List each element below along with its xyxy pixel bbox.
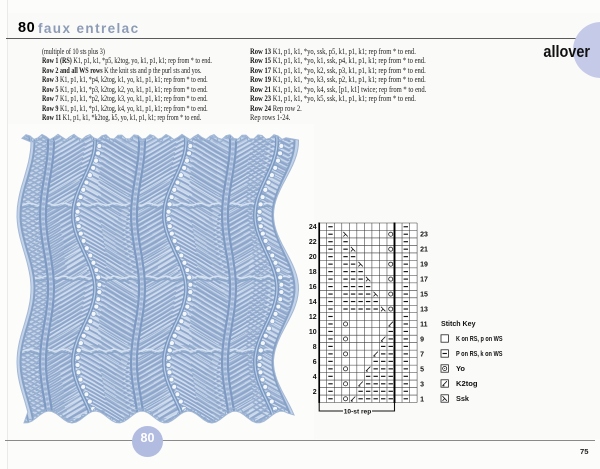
svg-text:12: 12 — [309, 314, 317, 321]
svg-text:22: 22 — [309, 239, 317, 246]
svg-text:3: 3 — [420, 381, 424, 388]
svg-text:Yo: Yo — [456, 366, 465, 373]
svg-text:16: 16 — [309, 284, 317, 291]
svg-text:10-st rep: 10-st rep — [344, 409, 372, 416]
svg-text:15: 15 — [420, 292, 428, 299]
svg-text:14: 14 — [309, 299, 317, 306]
svg-text:17: 17 — [420, 277, 428, 284]
svg-text:6: 6 — [313, 359, 317, 366]
svg-text:10: 10 — [309, 329, 317, 336]
svg-text:1: 1 — [420, 396, 424, 403]
svg-text:18: 18 — [309, 269, 317, 276]
svg-text:Ssk: Ssk — [456, 396, 469, 403]
svg-text:K2tog: K2tog — [456, 381, 478, 388]
svg-text:20: 20 — [309, 254, 317, 261]
svg-text:Stitch Key: Stitch Key — [441, 321, 476, 328]
svg-text:2: 2 — [313, 389, 317, 396]
svg-text:5: 5 — [420, 366, 424, 373]
svg-text:K on RS, p on WS: K on RS, p on WS — [456, 336, 503, 343]
svg-text:8: 8 — [313, 344, 317, 351]
svg-text:9: 9 — [420, 336, 424, 343]
svg-text:7: 7 — [420, 351, 424, 358]
svg-text:19: 19 — [420, 262, 428, 269]
svg-text:23: 23 — [420, 232, 428, 239]
svg-text:24: 24 — [309, 224, 317, 231]
svg-text:4: 4 — [313, 374, 317, 381]
svg-text:P on RS, k on WS: P on RS, k on WS — [456, 351, 503, 358]
svg-text:21: 21 — [420, 247, 428, 254]
